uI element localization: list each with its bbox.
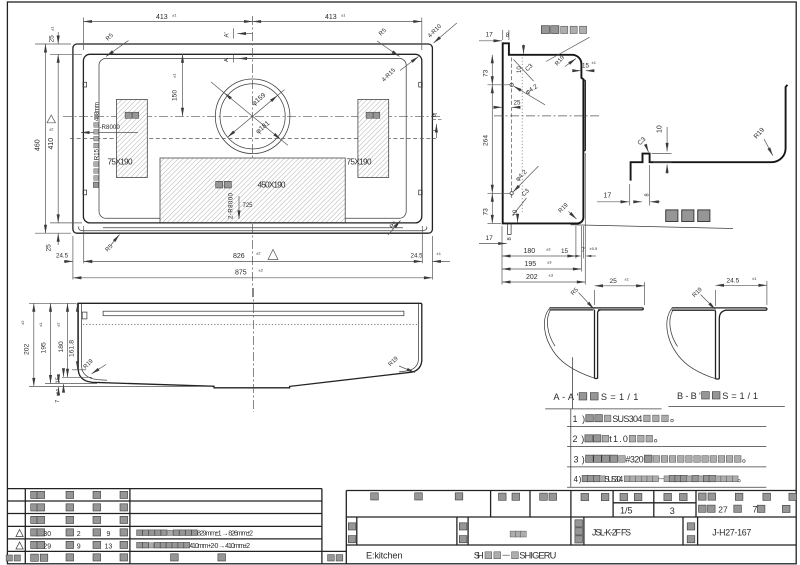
svg-text:725: 725 (243, 203, 254, 209)
svg-text:25: 25 (610, 278, 618, 285)
svg-text:±2: ±2 (259, 268, 264, 273)
svg-text:JSL-K-2F FS: JSL-K-2F FS (592, 527, 631, 537)
svg-text:875: 875 (235, 269, 247, 276)
svg-text:410mm+2-0 → 410mm±2: 410mm+2-0 → 410mm±2 (189, 543, 250, 550)
svg-text:±1: ±1 (50, 26, 55, 31)
svg-text:9: 9 (77, 543, 81, 550)
svg-text:1/5: 1/5 (620, 506, 633, 516)
svg-text:195: 195 (41, 342, 48, 354)
svg-text:7: 7 (55, 400, 61, 403)
svg-text:±3: ±3 (547, 260, 552, 265)
svg-text:161.8: 161.8 (69, 340, 76, 357)
svg-text:A': A' (225, 32, 231, 37)
svg-text:25: 25 (46, 244, 53, 252)
svg-text:13: 13 (105, 543, 113, 550)
svg-text:t1.0: t1.0 (609, 434, 628, 444)
svg-text:15: 15 (582, 63, 589, 70)
svg-text:25: 25 (49, 35, 56, 43)
svg-text:10: 10 (517, 66, 523, 73)
svg-text:202: 202 (24, 343, 31, 355)
svg-text:S=1/1: S=1/1 (722, 391, 758, 401)
svg-text:826: 826 (233, 253, 245, 260)
svg-text:±1: ±1 (341, 13, 346, 18)
svg-text:SH: SH (474, 551, 484, 561)
svg-text:450X190: 450X190 (258, 179, 286, 189)
svg-text:SHIGERU: SHIGERU (519, 551, 556, 561)
svg-text:408mm: 408mm (94, 102, 101, 121)
svg-text:SUS304: SUS304 (612, 414, 642, 424)
svg-text:8: 8 (507, 237, 513, 240)
svg-text:413: 413 (325, 14, 337, 21)
svg-text:15: 15 (561, 248, 569, 255)
svg-text:-R8000: -R8000 (100, 124, 121, 131)
svg-text:180: 180 (524, 248, 536, 255)
svg-text:±1: ±1 (592, 60, 597, 65)
svg-text:±3: ±3 (546, 247, 551, 252)
svg-text:413: 413 (156, 14, 168, 21)
svg-text:202: 202 (526, 274, 538, 281)
svg-text:±3: ±3 (549, 273, 554, 278)
svg-text:460: 460 (35, 139, 42, 151)
svg-text:2: 2 (77, 531, 81, 538)
svg-text:195: 195 (525, 261, 537, 268)
svg-text:±2: ±2 (20, 320, 25, 325)
svg-text:±2: ±2 (56, 322, 61, 327)
svg-text:24.5: 24.5 (727, 278, 740, 285)
svg-text:10: 10 (657, 125, 664, 133)
svg-text:27: 27 (718, 505, 728, 515)
svg-text:17: 17 (604, 193, 612, 200)
svg-text:24.5: 24.5 (411, 253, 424, 260)
svg-text:E:kitchen: E:kitchen (366, 551, 403, 561)
svg-text:829mm±1 → 826mm±2: 829mm±1 → 826mm±2 (197, 531, 253, 538)
svg-text:±1: ±1 (625, 277, 630, 282)
svg-text:8: 8 (645, 193, 651, 196)
svg-text:8: 8 (506, 32, 510, 39)
svg-text:B': B' (433, 113, 438, 119)
svg-text:30: 30 (43, 531, 51, 538)
svg-text:±2: ±2 (256, 251, 261, 256)
svg-text:±2: ±2 (49, 127, 54, 132)
svg-text:17: 17 (486, 32, 494, 39)
svg-text:±0.5: ±0.5 (590, 246, 599, 251)
svg-text:25: 25 (514, 99, 521, 106)
svg-text:4): 4) (574, 475, 582, 484)
svg-text:J-H27-167: J-H27-167 (712, 527, 751, 537)
svg-text:410: 410 (48, 138, 55, 150)
svg-text:9: 9 (107, 531, 111, 538)
svg-text:±1: ±1 (437, 251, 442, 256)
svg-text:17: 17 (486, 235, 494, 242)
svg-text:7: 7 (753, 504, 758, 514)
svg-text:150: 150 (172, 90, 179, 101)
svg-text:180: 180 (58, 341, 65, 353)
svg-text:S=1/1: S=1/1 (601, 392, 639, 402)
svg-text:29: 29 (43, 543, 51, 550)
svg-text:2-R8000: 2-R8000 (228, 192, 235, 219)
svg-text:24.5: 24.5 (56, 253, 69, 260)
svg-text:R15: R15 (94, 148, 101, 160)
svg-text:±1: ±1 (752, 276, 757, 281)
svg-text:73: 73 (483, 69, 490, 77)
svg-text:10: 10 (513, 209, 519, 216)
svg-text:#320: #320 (626, 454, 644, 464)
svg-text:75X190: 75X190 (108, 158, 133, 167)
svg-text:264: 264 (482, 135, 489, 146)
svg-text:±0.5: ±0.5 (56, 389, 60, 396)
svg-text:3: 3 (670, 506, 675, 516)
svg-text:73: 73 (483, 208, 490, 216)
svg-text:A: A (224, 58, 230, 62)
svg-text:±1: ±1 (172, 13, 177, 18)
svg-text:75X190: 75X190 (347, 158, 372, 167)
svg-text:±1: ±1 (172, 73, 177, 78)
svg-text:±1: ±1 (38, 322, 43, 327)
svg-text:SUS304: SUS304 (604, 475, 624, 484)
